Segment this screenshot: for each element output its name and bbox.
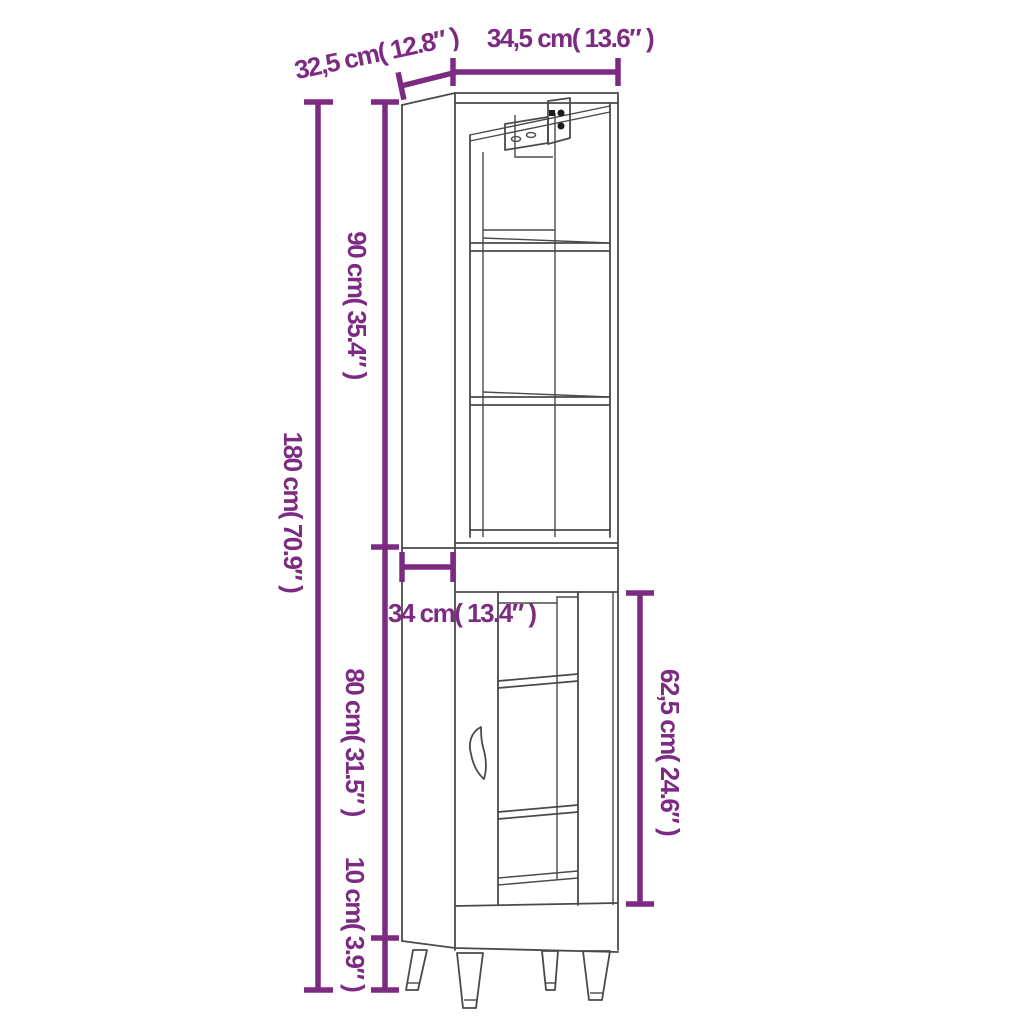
dimension-line-door-height — [626, 593, 654, 904]
leg-back-right — [542, 951, 558, 990]
dimension-annotations: 32,5 cm( 12.8″ ) 34,5 cm( 13.6″ ) 180 cm… — [278, 21, 685, 992]
leg-back-left — [406, 950, 427, 990]
lower-cabinet — [402, 592, 618, 952]
label-top-width: 34,5 cm( 13.6″ ) — [487, 23, 654, 53]
cabinet-dimension-drawing: 32,5 cm( 12.8″ ) 34,5 cm( 13.6″ ) 180 cm… — [0, 0, 1024, 1024]
label-upper-height: 90 cm( 35.4″ ) — [342, 231, 372, 379]
label-door-height: 62,5 cm( 24.6″ ) — [655, 669, 685, 836]
upper-cabinet-front — [455, 93, 618, 950]
label-lower-height: 80 cm( 31.5″ ) — [340, 668, 370, 816]
upper-shelf-1 — [470, 238, 610, 251]
cabinet-junction — [402, 530, 618, 548]
dimension-diagram: 32,5 cm( 12.8″ ) 34,5 cm( 13.6″ ) 180 cm… — [0, 0, 1024, 1024]
dimension-line-top-width — [453, 58, 618, 86]
door-handle — [470, 727, 486, 779]
cabinet-legs — [406, 950, 610, 1008]
label-total-height: 180 cm( 70.9″ ) — [278, 432, 308, 593]
label-lower-depth: 34 cm( 13.4″ ) — [388, 598, 536, 628]
dimension-line-lower-depth — [402, 552, 453, 582]
upper-shelf-2 — [470, 392, 610, 405]
cabinet-drawing — [402, 93, 618, 1008]
upper-cabinet-side-panel — [402, 93, 455, 950]
dimension-line-segment-heights — [371, 102, 399, 990]
label-leg-height: 10 cm( 3.9″ ) — [340, 857, 370, 992]
